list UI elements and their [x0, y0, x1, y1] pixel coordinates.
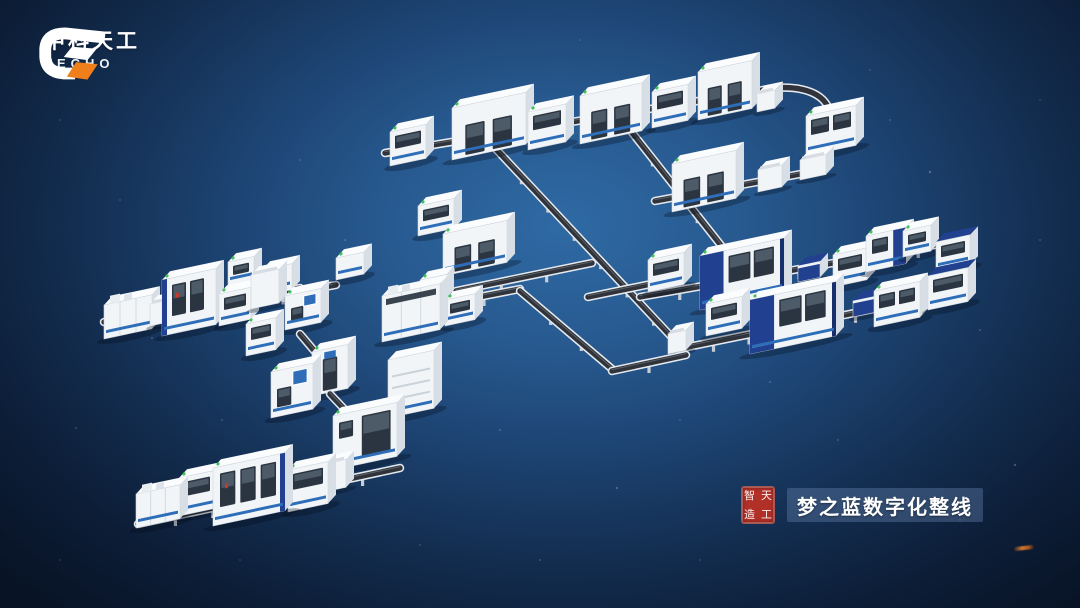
caption-bar: 梦之蓝数字化整线	[787, 488, 983, 522]
machine-win	[384, 115, 437, 174]
seal-char: 造	[741, 505, 758, 524]
star	[579, 39, 581, 41]
machine-plain	[331, 243, 375, 288]
star	[151, 337, 153, 339]
brand-logo: 中科天工 TECHO	[36, 20, 140, 71]
star	[929, 171, 931, 173]
star	[239, 559, 241, 561]
star	[344, 239, 346, 241]
seal-char: 工	[758, 505, 775, 524]
star	[221, 419, 223, 421]
red-seal-icon: 智 天 造 工	[741, 486, 775, 524]
machine-stand	[795, 145, 836, 186]
machine-blueTop	[922, 258, 980, 318]
machine-big3	[204, 442, 300, 534]
star	[419, 544, 421, 546]
slide-canvas: 中科天工 TECHO 智 天 造 工 梦之蓝数字化整线	[0, 0, 1080, 608]
star	[539, 559, 541, 561]
conveyor-belt	[495, 147, 680, 346]
machine-screen	[265, 353, 325, 426]
machine-win	[646, 75, 699, 136]
star	[1039, 99, 1041, 101]
star	[1014, 464, 1016, 466]
conveyor-belt	[612, 354, 686, 373]
star	[59, 119, 61, 121]
machine-door2	[664, 140, 751, 220]
caption-label: 梦之蓝数字化整线	[797, 491, 973, 520]
star	[499, 429, 501, 431]
machine-panel	[130, 474, 193, 536]
star	[889, 119, 891, 121]
production-line	[97, 51, 981, 537]
star	[119, 199, 121, 201]
seal-char: 智	[741, 486, 758, 505]
machine-door2	[691, 51, 766, 129]
machine-door2	[443, 82, 542, 169]
conveyor-belt	[520, 290, 612, 369]
star	[679, 419, 681, 421]
star	[837, 439, 839, 441]
star	[59, 559, 61, 561]
star	[699, 559, 701, 561]
star	[299, 159, 301, 161]
star	[869, 69, 871, 71]
star	[1039, 239, 1041, 241]
star	[769, 381, 771, 383]
star	[979, 329, 981, 331]
seal-char: 天	[758, 486, 775, 505]
star	[75, 427, 77, 429]
techo-logo-icon	[36, 20, 108, 92]
machine-big2	[155, 259, 230, 345]
star	[616, 487, 618, 489]
caption: 智 天 造 工 梦之蓝数字化整线	[741, 486, 983, 524]
machine-panel2	[374, 273, 454, 351]
machine-stand	[754, 156, 793, 198]
